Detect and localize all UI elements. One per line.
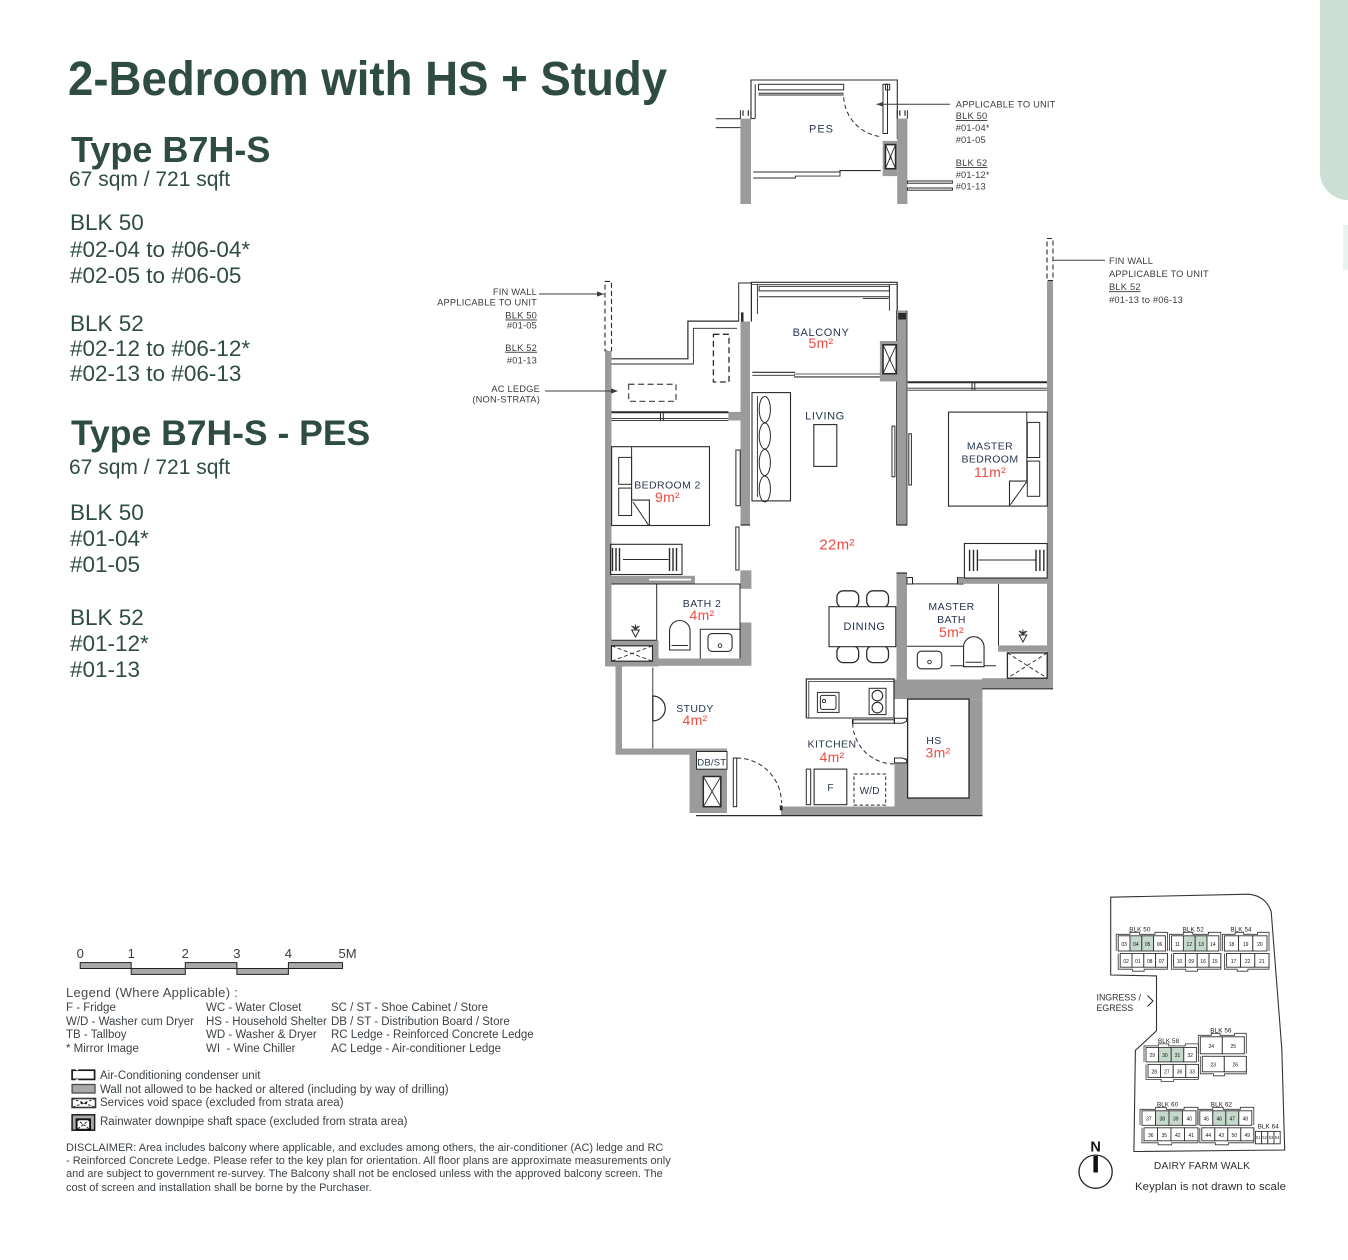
svg-text:BLK 56: BLK 56 <box>1210 1027 1232 1034</box>
svg-text:05: 05 <box>1145 942 1151 948</box>
svg-text:BLK 50: BLK 50 <box>505 311 537 321</box>
svg-text:W/D: W/D <box>860 786 880 797</box>
svg-text:1: 1 <box>128 946 135 961</box>
svg-text:49: 49 <box>1245 1133 1251 1139</box>
svg-text:BLK 64: BLK 64 <box>1258 1124 1280 1131</box>
svg-text:APPLICABLE TO UNIT: APPLICABLE TO UNIT <box>1109 269 1209 279</box>
svg-text:BLK 60: BLK 60 <box>1157 1101 1179 1108</box>
svg-text:08: 08 <box>1147 959 1153 965</box>
svg-text:33: 33 <box>1189 1069 1195 1075</box>
svg-text:0: 0 <box>77 946 84 961</box>
svg-text:13: 13 <box>1198 942 1204 948</box>
svg-text:#01-13: #01-13 <box>507 356 537 366</box>
svg-text:30: 30 <box>1162 1053 1168 1059</box>
svg-text:EGRESS: EGRESS <box>1097 1003 1134 1013</box>
svg-text:19: 19 <box>1243 942 1249 948</box>
svg-text:41: 41 <box>1188 1133 1194 1139</box>
svg-text:3: 3 <box>233 946 240 961</box>
svg-text:14: 14 <box>1210 942 1216 948</box>
svg-text:BLK 50: BLK 50 <box>1129 926 1151 933</box>
svg-text:DINING: DINING <box>843 621 885 633</box>
svg-text:3m²: 3m² <box>925 745 950 761</box>
svg-text:43: 43 <box>1219 1133 1225 1139</box>
svg-text:22: 22 <box>1245 959 1251 965</box>
svg-text:5m²: 5m² <box>808 335 833 351</box>
svg-text:BLK 52: BLK 52 <box>1183 926 1205 933</box>
svg-text:28: 28 <box>1152 1069 1158 1075</box>
svg-text:#01-05: #01-05 <box>507 320 537 330</box>
svg-text:BLK 52: BLK 52 <box>956 158 988 168</box>
svg-text:46: 46 <box>1217 1117 1223 1123</box>
svg-text:5m²: 5m² <box>939 624 964 640</box>
svg-text:48: 48 <box>1243 1117 1249 1123</box>
svg-text:DB/ST: DB/ST <box>697 757 726 768</box>
svg-text:4m²: 4m² <box>689 607 714 623</box>
svg-text:#01-05: #01-05 <box>956 135 986 145</box>
svg-text:5M: 5M <box>338 946 356 961</box>
svg-text:47: 47 <box>1230 1117 1236 1123</box>
svg-text:44: 44 <box>1206 1133 1212 1139</box>
svg-text:DAIRY FARM WALK: DAIRY FARM WALK <box>1154 1161 1250 1172</box>
svg-text:23: 23 <box>1211 1063 1217 1069</box>
svg-text:45: 45 <box>1204 1117 1210 1123</box>
svg-text:01: 01 <box>1135 959 1141 965</box>
svg-text:LIVING: LIVING <box>805 411 845 423</box>
svg-text:BLK 52: BLK 52 <box>505 343 537 353</box>
svg-text:40: 40 <box>1186 1117 1192 1123</box>
svg-text:35: 35 <box>1161 1133 1167 1139</box>
svg-text:APPLICABLE TO UNIT: APPLICABLE TO UNIT <box>437 298 537 308</box>
svg-text:MASTER: MASTER <box>967 441 1013 453</box>
svg-text:50: 50 <box>1232 1133 1238 1139</box>
svg-text:PES: PES <box>809 124 834 136</box>
svg-text:4: 4 <box>285 946 292 961</box>
svg-text:29: 29 <box>1150 1053 1156 1059</box>
svg-text:APPLICABLE TO UNIT: APPLICABLE TO UNIT <box>956 100 1056 110</box>
svg-text:11m²: 11m² <box>974 464 1006 480</box>
svg-text:FIN WALL: FIN WALL <box>1109 256 1153 266</box>
svg-text:26: 26 <box>1233 1063 1239 1069</box>
svg-text:53: 53 <box>1269 1135 1274 1140</box>
svg-text:15: 15 <box>1212 959 1218 965</box>
svg-text:#01-04*: #01-04* <box>956 123 990 133</box>
svg-text:24: 24 <box>1209 1044 1215 1050</box>
svg-text:BLK 50: BLK 50 <box>956 111 988 121</box>
svg-text:25: 25 <box>1231 1044 1237 1050</box>
svg-text:38: 38 <box>1159 1117 1165 1123</box>
svg-text:32: 32 <box>1187 1053 1193 1059</box>
svg-text:(NON-STRATA): (NON-STRATA) <box>472 395 540 405</box>
svg-text:11: 11 <box>1175 942 1180 948</box>
svg-text:2: 2 <box>182 946 189 961</box>
svg-text:9m²: 9m² <box>655 489 680 505</box>
svg-text:03: 03 <box>1121 942 1127 948</box>
svg-text:22m²: 22m² <box>819 537 854 554</box>
svg-text:BLK 58: BLK 58 <box>1158 1038 1180 1045</box>
svg-text:21: 21 <box>1259 959 1265 965</box>
svg-text:27: 27 <box>1164 1069 1170 1075</box>
svg-text:37: 37 <box>1146 1117 1152 1123</box>
svg-text:17: 17 <box>1231 959 1237 965</box>
svg-text:39: 39 <box>1173 1117 1179 1123</box>
svg-text:12: 12 <box>1187 942 1193 948</box>
svg-text:31: 31 <box>1175 1053 1181 1059</box>
svg-text:42: 42 <box>1175 1133 1181 1139</box>
svg-text:52: 52 <box>1262 1135 1267 1140</box>
svg-text:BLK 62: BLK 62 <box>1211 1101 1233 1108</box>
svg-text:MASTER: MASTER <box>928 601 974 613</box>
svg-text:04: 04 <box>1133 942 1139 948</box>
svg-text:10: 10 <box>1177 959 1183 965</box>
svg-text:BLK 52: BLK 52 <box>1109 282 1141 292</box>
svg-text:#01-12*: #01-12* <box>956 170 990 180</box>
svg-text:02: 02 <box>1123 959 1129 965</box>
svg-text:F: F <box>827 783 833 794</box>
svg-text:51: 51 <box>1256 1135 1261 1140</box>
svg-text:4m²: 4m² <box>682 712 707 728</box>
svg-text:FIN WALL: FIN WALL <box>493 287 537 297</box>
svg-text:#01-13: #01-13 <box>956 182 986 192</box>
svg-text:18: 18 <box>1229 942 1235 948</box>
svg-text:20: 20 <box>1257 942 1263 948</box>
svg-text:N: N <box>1090 1140 1100 1156</box>
svg-text:INGRESS /: INGRESS / <box>1097 993 1142 1003</box>
svg-text:4m²: 4m² <box>819 749 844 765</box>
svg-text:BLK 54: BLK 54 <box>1230 926 1252 933</box>
svg-text:36: 36 <box>1177 1069 1183 1075</box>
svg-text:Keyplan is not drawn to scale: Keyplan is not drawn to scale <box>1135 1181 1286 1193</box>
svg-text:16: 16 <box>1200 959 1206 965</box>
svg-text:AC LEDGE: AC LEDGE <box>491 384 540 394</box>
svg-text:36: 36 <box>1148 1133 1154 1139</box>
svg-text:09: 09 <box>1189 959 1195 965</box>
svg-text:07: 07 <box>1159 959 1165 965</box>
svg-text:54: 54 <box>1275 1135 1280 1140</box>
svg-text:06: 06 <box>1157 942 1163 948</box>
svg-text:#01-13 to #06-13: #01-13 to #06-13 <box>1109 295 1183 305</box>
